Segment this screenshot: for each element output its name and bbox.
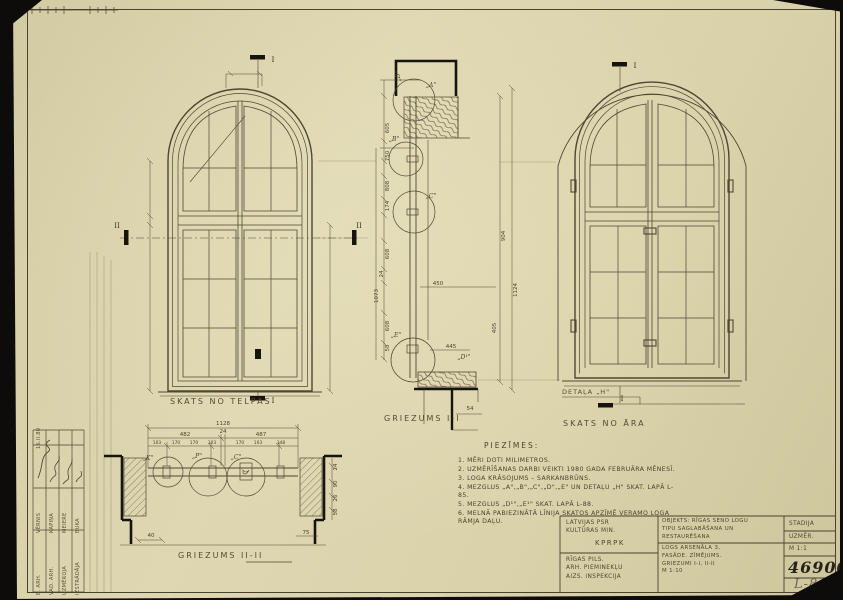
titleblock-org-top: LATVIJAS PSR KULTŪRAS MIN. KPRPK [566, 519, 654, 548]
dim-label: 170 [236, 440, 245, 446]
marker-label: I [634, 62, 637, 70]
org-abbrev: KPRPK [566, 538, 654, 548]
dim-label: 170 [190, 440, 199, 446]
detail-label: „E" [391, 332, 401, 339]
titleblock-subject: LOGS ARSENĀLA 3, FASĀDE. ZĪMĒJUMS. GRIEZ… [662, 545, 782, 576]
titleblock-object: OBJEKTS: RĪGAS SENO LOGU TIPU SAGLABĀŠAN… [662, 518, 782, 541]
dim-label: 24 [220, 429, 227, 435]
note-item: 5. MEZGLUS „D¹",„E¹" SKAT. LAPĀ L-88. [458, 501, 683, 509]
signature-date: 16.II.80 [36, 428, 42, 449]
dim-label: 148 [277, 440, 286, 446]
dim-label: 608 [385, 248, 391, 259]
signature-role: IZSTRĀDĀJA [75, 562, 81, 595]
note-item: 1. MĒRI DOTI MILIMETROS. [458, 457, 683, 465]
org-line: LATVIJAS PSR [566, 519, 654, 527]
detail-label: „B" [389, 136, 400, 143]
marker-label: I [272, 56, 275, 64]
caption-section-i: GRIEZUMS I-I [384, 414, 461, 423]
dim-label: 487 [256, 432, 267, 438]
object-line: OBJEKTS: RĪGAS SENO LOGU [662, 518, 782, 526]
signature-name: VĒRNIS [36, 513, 42, 533]
detail-label: „C" [426, 193, 437, 200]
note-item: 3. LOGA KRĀSOJUMS – SARKANBRŪNS. [458, 475, 683, 483]
caption-detail-h: DETAĻA „H" [562, 388, 610, 396]
window-elevation-outside [558, 82, 746, 404]
dim-label: 54 [467, 406, 474, 412]
horizontal-section [104, 424, 342, 562]
signature-name: BUKA [75, 518, 81, 533]
dim-label: 605 [385, 122, 391, 133]
detail-label: „C" [231, 454, 242, 461]
signature-role: VAD. ARH. [49, 567, 55, 595]
dim-label: 103 [208, 440, 217, 446]
detail-label: „D" [395, 70, 402, 81]
section-markers-right-window [598, 62, 627, 408]
dim-label: 103 [153, 440, 162, 446]
dim-label: 170 [172, 440, 181, 446]
dim-label: 450 [433, 281, 444, 287]
signature-role: UZMĒROJA [62, 566, 68, 595]
org-line: AIZS. INSPEKCIJA [566, 573, 654, 581]
titleblock-org-bottom: RĪGAS PILS. ARH. PIEMINEKĻU AIZS. INSPEK… [566, 556, 654, 581]
signature-name: MEIERE [62, 512, 68, 533]
titleblock-scale: M 1:1 [789, 545, 807, 553]
marker-label: II [356, 222, 362, 230]
vertical-section [376, 61, 515, 430]
titleblock-stage-label: STADIJA [789, 520, 814, 528]
org-line: KULTŪRAS MIN. [566, 527, 654, 535]
dim-label: 24 [333, 463, 339, 470]
dim-label: 103 [254, 440, 263, 446]
dim-label: 75 [303, 530, 310, 536]
subject-line: GRIEZUMI I-I, II-II [662, 561, 782, 569]
dim-label: 24 [379, 270, 385, 277]
dim-label: 1073 [374, 289, 380, 303]
dim-label: 90 [333, 480, 339, 487]
dim-label: 750 [385, 150, 391, 161]
marker-label: I [272, 397, 275, 405]
note-item: 2. UZMĒRĪŠANAS DARBI VEIKTI 1980 GADA FE… [458, 466, 683, 474]
detail-label: „K" [143, 455, 154, 462]
drawing-canvas: 1128 482 24 487 103 170 170 103 170 103 … [0, 0, 843, 600]
caption-section-ii: GRIEZUMS II-II [178, 551, 263, 560]
section-markers-left-window [124, 55, 357, 401]
org-line: RĪGAS PILS. [566, 556, 654, 564]
notes-title: PIEZĪMES: [484, 441, 683, 450]
dim-label: 608 [385, 320, 391, 331]
ruler-ticks [30, 6, 118, 14]
caption-view-inside: SKATS NO TELPAS [170, 397, 272, 406]
subject-line: LOGS ARSENĀLA 3, [662, 545, 782, 553]
dim-label: 40 [148, 533, 155, 539]
detail-label: „P" [192, 453, 202, 460]
window-elevation-inside [120, 71, 360, 396]
caption-view-outside: SKATS NO ĀRA [563, 419, 646, 428]
object-line: TIPU SAGLABĀŠANA UN [662, 526, 782, 534]
dim-label: 808 [385, 180, 391, 191]
marker-label: II [114, 222, 120, 230]
dim-label: 174 [385, 200, 391, 211]
titleblock-stage-value: UZMĒR. [789, 533, 814, 541]
marker-label: I [621, 395, 624, 403]
org-line: ARH. PIEMINEKĻU [566, 564, 654, 572]
dim-label: 445 [446, 344, 457, 350]
subject-line: FASĀDE. ZĪMĒJUMS. [662, 553, 782, 561]
dim-label: 904 [501, 230, 507, 241]
notes-block: PIEZĪMES: 1. MĒRI DOTI MILIMETROS. 2. UZ… [458, 441, 683, 528]
dim-label: 58 [385, 344, 391, 351]
subject-line: M 1:10 [662, 568, 782, 576]
dim-label: 482 [180, 432, 191, 438]
note-item: 4. MEZGLUS „A",„B",„C",„D",„E" UN DETAĻU… [458, 484, 683, 500]
signature-role: B. ARH. [36, 574, 42, 595]
dim-label: 58 [333, 508, 339, 515]
dim-label: 1124 [513, 283, 519, 297]
detail-label: „A" [426, 82, 436, 89]
dim-label: 26 [333, 494, 339, 501]
signature-name: KAPIŅA [49, 513, 55, 533]
dim-label: 405 [492, 322, 498, 333]
dim-label: 1128 [216, 421, 230, 427]
object-line: RESTAURĒŠANA [662, 534, 782, 542]
detail-label: „D¹" [457, 354, 470, 361]
